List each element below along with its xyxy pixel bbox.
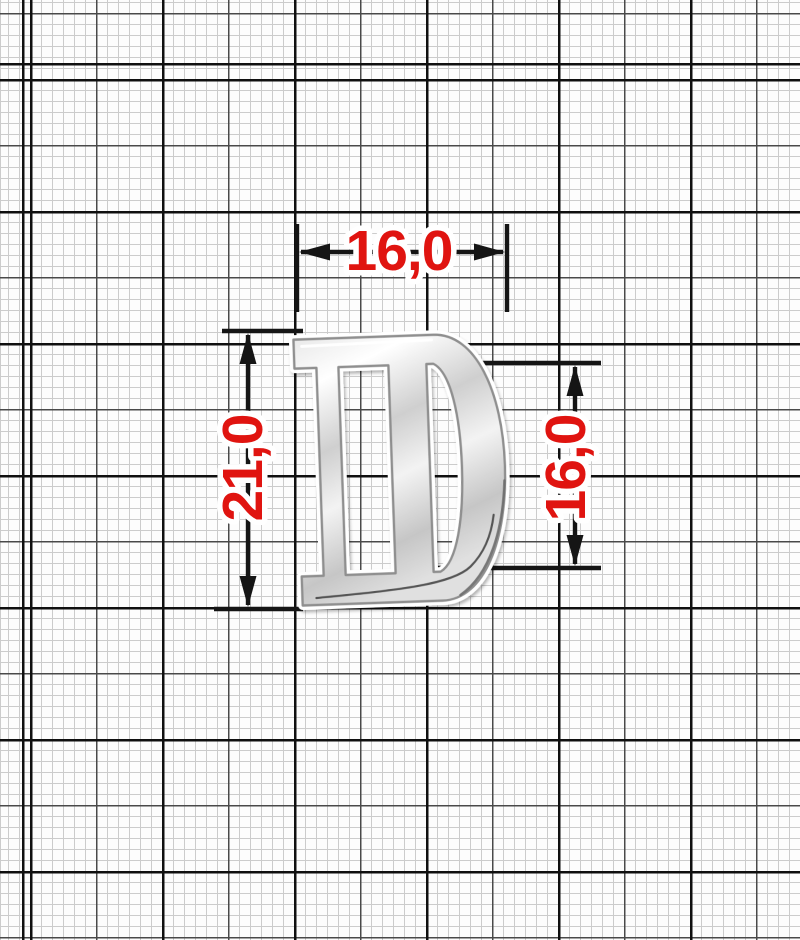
dimension-label-width: 16,0 xyxy=(346,219,453,283)
arrowhead-right-icon xyxy=(474,244,505,261)
drawing-canvas: 16,0 21,0 16,0 xyxy=(0,0,800,940)
arrowhead-down-icon xyxy=(567,535,584,566)
dimension-label-inner-height: 16,0 xyxy=(534,415,598,522)
arrowhead-up-icon xyxy=(567,365,584,396)
dimensional-drawing: 16,0 21,0 16,0 xyxy=(0,0,800,940)
arrowhead-left-icon xyxy=(299,244,330,261)
arrowhead-down-icon xyxy=(240,576,257,607)
arrowhead-up-icon xyxy=(240,333,257,364)
dimension-label-height: 21,0 xyxy=(211,415,275,522)
letter-d-body xyxy=(293,332,509,605)
letter-d-hardware xyxy=(293,332,509,605)
